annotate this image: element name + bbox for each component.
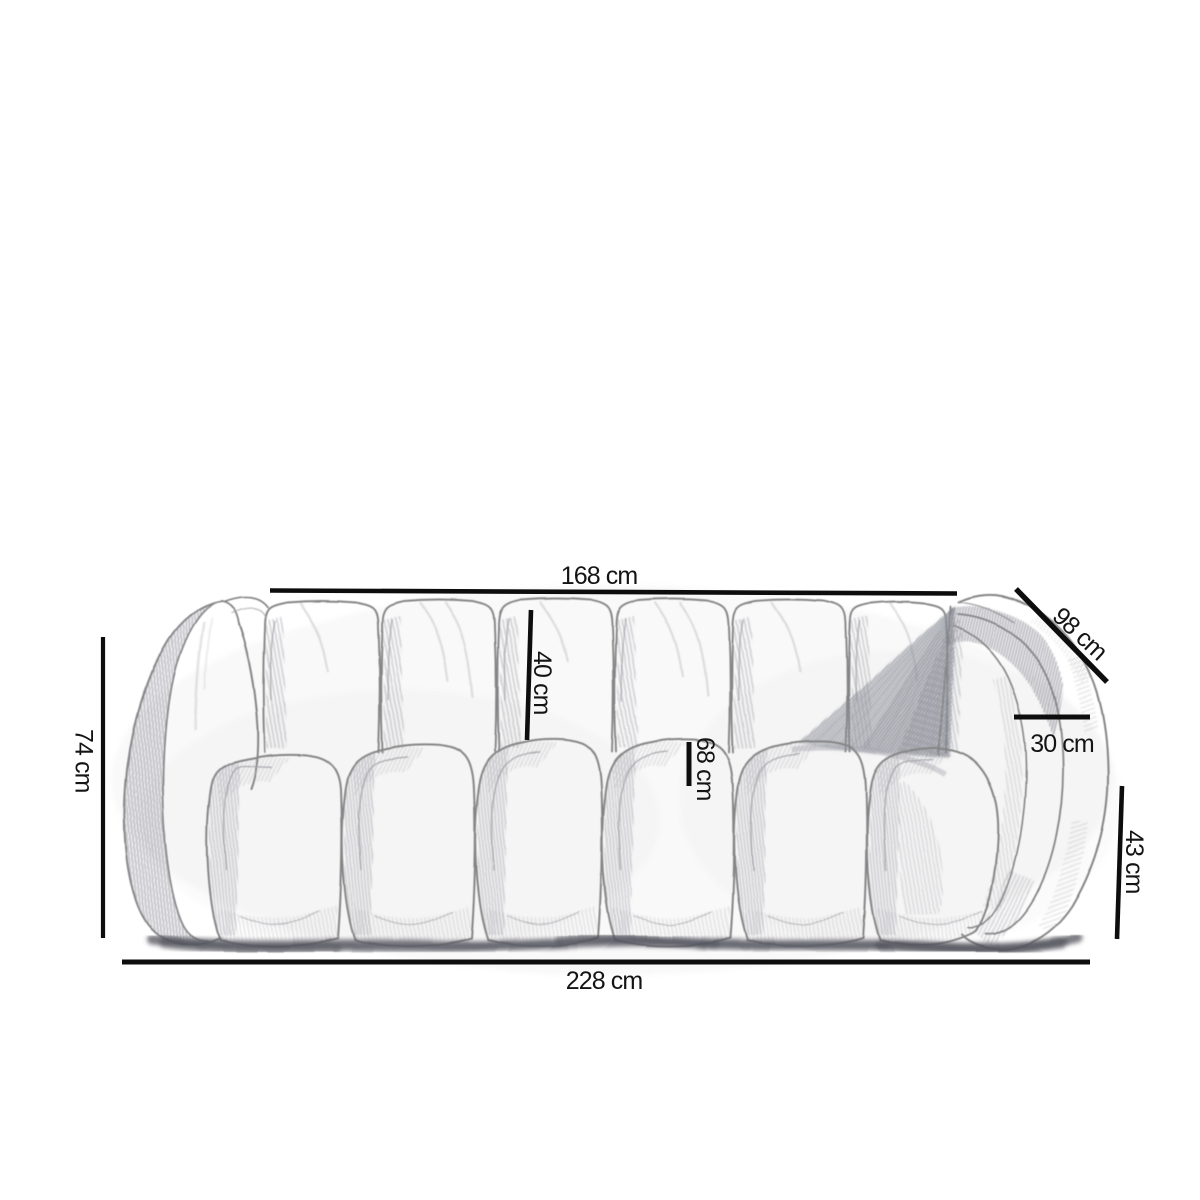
svg-text:30 cm: 30 cm xyxy=(1030,730,1094,758)
svg-text:74 cm: 74 cm xyxy=(70,729,98,793)
svg-text:40 cm: 40 cm xyxy=(528,651,556,715)
svg-text:43 cm: 43 cm xyxy=(1120,830,1148,894)
svg-text:68 cm: 68 cm xyxy=(691,737,719,801)
svg-text:228 cm: 228 cm xyxy=(566,967,643,995)
svg-text:168 cm: 168 cm xyxy=(561,562,638,590)
